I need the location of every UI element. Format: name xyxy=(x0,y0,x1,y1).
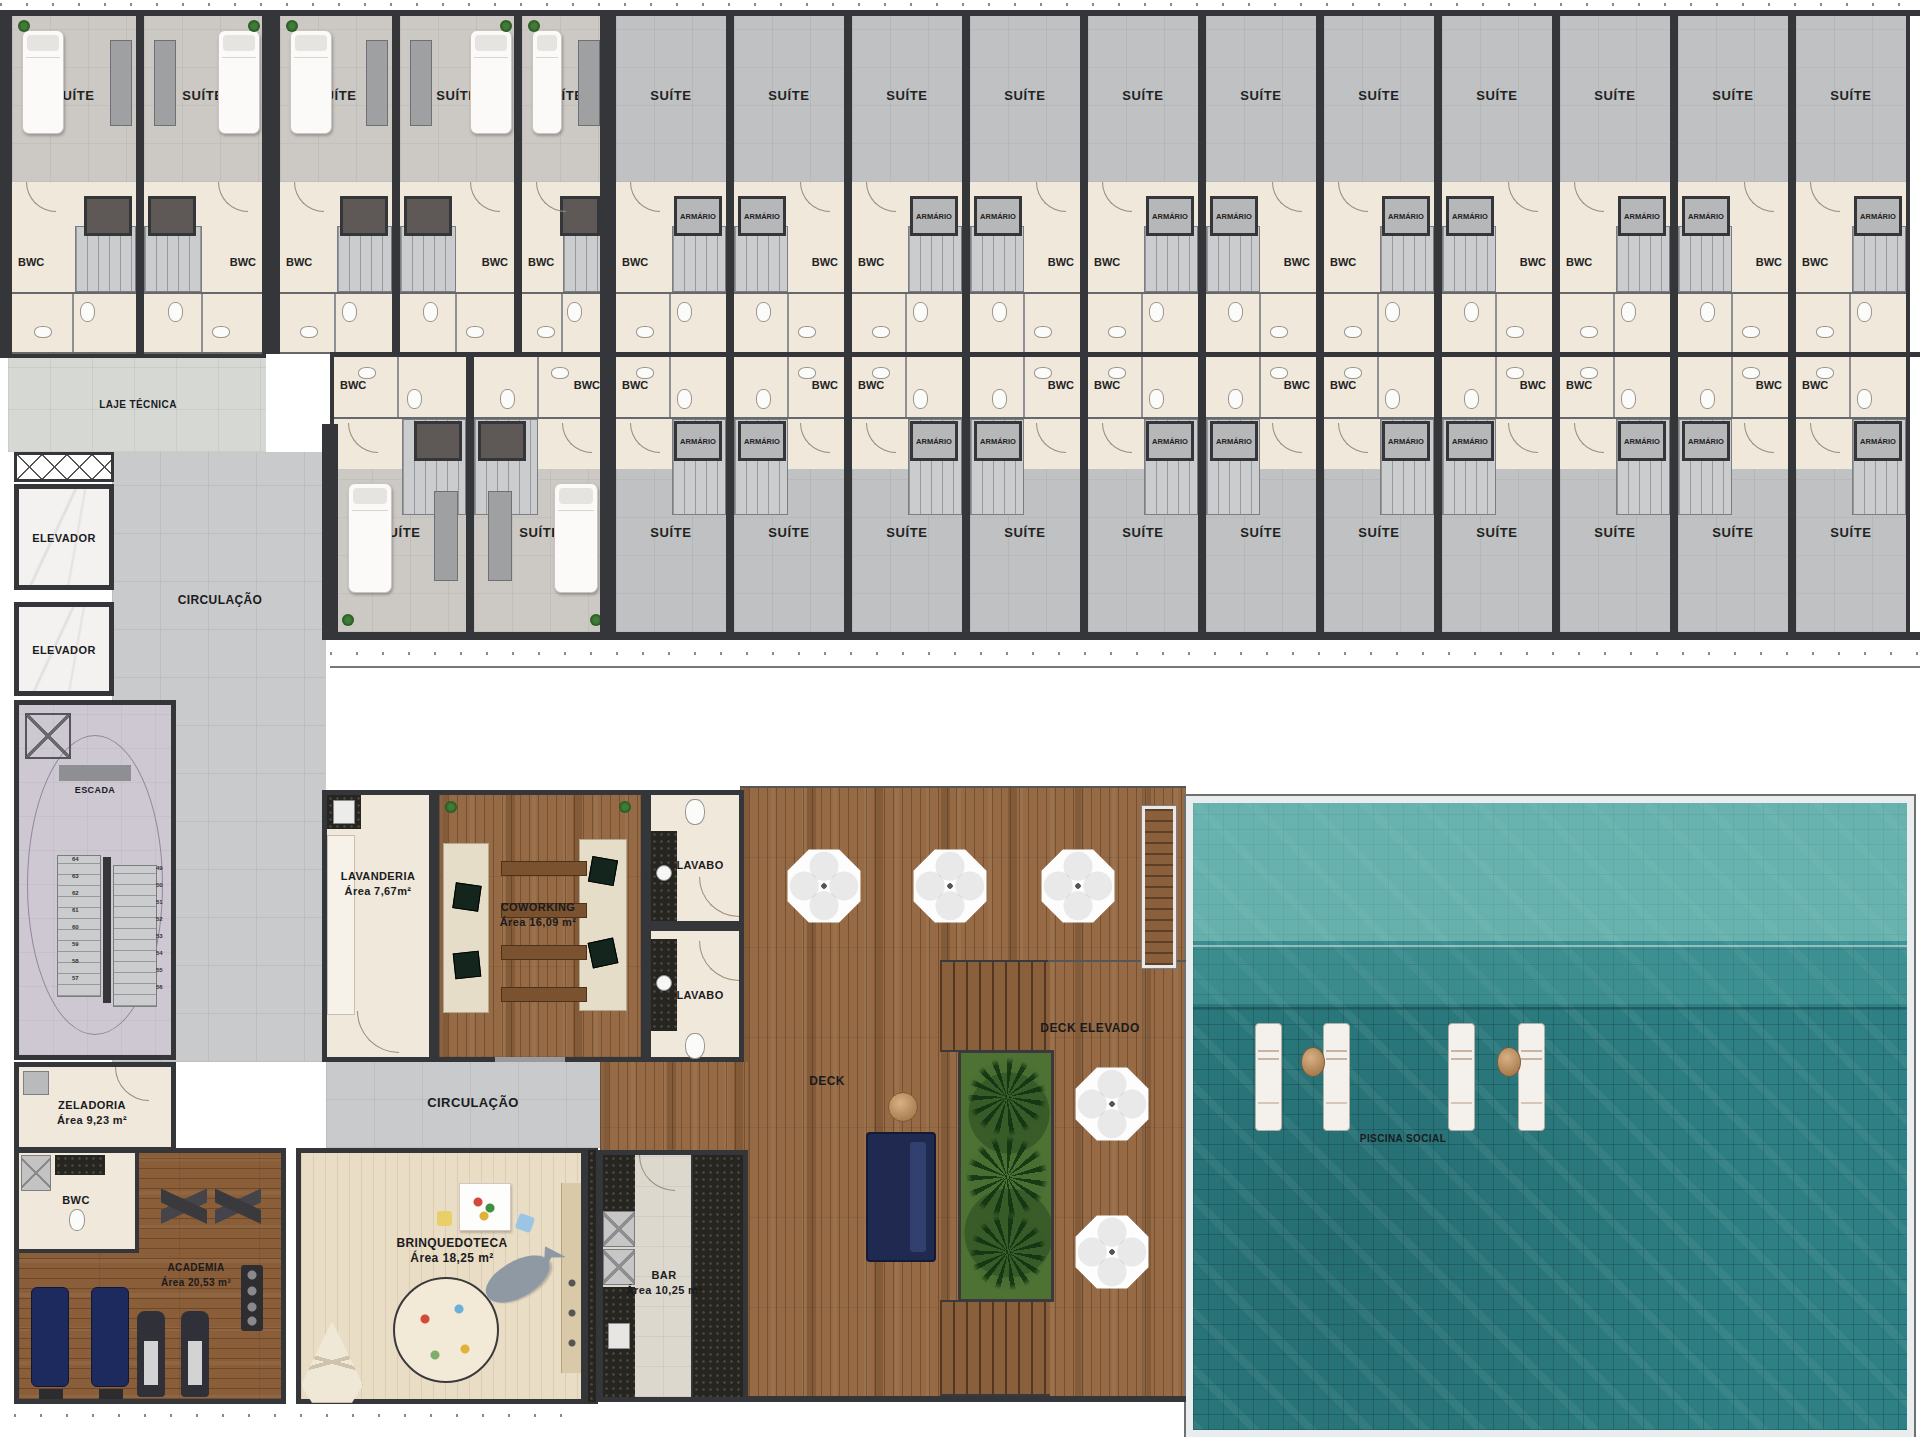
room-lavanderia xyxy=(322,790,434,1062)
label-deck: DECK xyxy=(809,1074,845,1089)
pair-wall xyxy=(0,10,8,358)
toilet xyxy=(567,302,582,322)
gym-treadmill xyxy=(181,1311,209,1397)
toilet xyxy=(80,302,95,322)
floor-plan: SUÍTEBWCSUÍTEBWCSUÍTEBWCSUÍTEBWCSUÍTEBWC… xyxy=(0,0,1920,1437)
suite-unit-row2: BWCARMÁRIOSUÍTE xyxy=(1556,357,1674,632)
stair-number: 64 xyxy=(72,856,79,862)
armario-closet xyxy=(414,421,462,461)
suite-bathroom-fixtures xyxy=(144,292,262,354)
sink xyxy=(1506,326,1524,338)
bath-divider xyxy=(72,294,74,352)
gym-crosstrainer xyxy=(215,1159,261,1231)
plant xyxy=(528,20,540,32)
bath-divider xyxy=(905,294,907,352)
label-elevador-1: ELEVADOR xyxy=(32,531,96,546)
suite-unit-row1: SUÍTEBWC xyxy=(518,16,608,354)
suite-label: SUÍTE xyxy=(1560,525,1670,540)
armario-closet: ARMÁRIO xyxy=(1382,421,1430,461)
pool-lounger xyxy=(1448,1023,1475,1131)
stair-number: 59 xyxy=(72,941,79,947)
sink xyxy=(34,326,52,338)
suite-unit-row1: SUÍTEBWC xyxy=(276,16,396,354)
gym-crosstrainer xyxy=(161,1159,207,1231)
sink xyxy=(872,367,890,379)
room-brinquedoteca xyxy=(296,1148,586,1404)
suite-label: SUÍTE xyxy=(1088,88,1198,103)
bwc-label: BWC xyxy=(286,256,312,268)
top-railing xyxy=(0,0,1920,10)
palm-tree xyxy=(964,1208,1052,1296)
wardrobe xyxy=(110,40,132,126)
suite-label: SUÍTE xyxy=(1088,525,1198,540)
suite-bathroom-fixtures xyxy=(1206,292,1316,354)
toilet xyxy=(685,799,705,825)
plant xyxy=(342,614,354,626)
suite-label: SUÍTE xyxy=(852,88,962,103)
bar-stove xyxy=(603,1211,635,1247)
wardrobe xyxy=(578,40,600,126)
shower-box xyxy=(21,1155,51,1191)
bwc-label: BWC xyxy=(622,379,648,391)
bath-divider xyxy=(787,294,789,352)
bath-divider xyxy=(1377,357,1379,417)
pair-wall xyxy=(262,10,276,354)
sink xyxy=(1506,367,1524,379)
sink xyxy=(1742,326,1760,338)
escada-steps-right xyxy=(113,865,157,1007)
sink xyxy=(212,326,230,338)
pool-side-table xyxy=(1497,1047,1521,1077)
palm-tree xyxy=(962,1052,1052,1142)
toilet xyxy=(168,302,183,322)
bwc-label: BWC xyxy=(1094,256,1120,268)
bed xyxy=(348,483,392,593)
lavanderia-door-arc xyxy=(357,1011,399,1053)
bath-divider xyxy=(1613,294,1615,352)
sink xyxy=(466,326,484,338)
armario-closet: ARMÁRIO xyxy=(674,421,722,461)
armario-closet: ARMÁRIO xyxy=(910,421,958,461)
basin xyxy=(656,865,672,881)
toilet xyxy=(913,389,928,409)
suite-label: SUÍTE xyxy=(616,88,726,103)
armario-closet xyxy=(404,196,452,236)
armario-closet xyxy=(478,421,526,461)
bwc-label: BWC xyxy=(482,256,508,268)
pool-lounger xyxy=(1518,1023,1545,1131)
suite-bathroom-fixtures xyxy=(1678,292,1788,354)
suite-label: SUÍTE xyxy=(1678,525,1788,540)
plant xyxy=(500,20,512,32)
armario-closet: ARMÁRIO xyxy=(974,196,1022,236)
bwc-label: BWC xyxy=(340,379,366,391)
bwc-label: BWC xyxy=(1520,256,1546,268)
suite-unit-row1: SUÍTEARMÁRIOBWC xyxy=(1320,16,1438,354)
suite-bathroom-fixtures xyxy=(1796,292,1906,354)
suite-bathroom-fixtures xyxy=(852,292,962,354)
suite-label: SUÍTE xyxy=(1206,525,1316,540)
room-escada xyxy=(14,700,176,1060)
bwc-label: BWC xyxy=(1566,256,1592,268)
bath-divider xyxy=(1495,357,1497,417)
suite-bathroom-fixtures xyxy=(12,292,136,354)
bath-divider xyxy=(1849,294,1851,352)
suite-label: SUÍTE xyxy=(852,525,962,540)
bwc-label: BWC xyxy=(1330,256,1356,268)
suite-unit-row2: BWCARMÁRIOSUÍTE xyxy=(1674,357,1792,632)
armario-closet: ARMÁRIO xyxy=(1382,196,1430,236)
armario-closet: ARMÁRIO xyxy=(1682,421,1730,461)
gym-treadmill xyxy=(137,1311,165,1397)
play-rug xyxy=(393,1277,499,1383)
label-zeladoria: ZELADORIAÁrea 9,23 m² xyxy=(57,1098,127,1128)
bed xyxy=(218,30,260,134)
sink xyxy=(872,326,890,338)
pool xyxy=(1186,796,1914,1437)
deck-step-band xyxy=(940,960,1050,1052)
bed xyxy=(532,30,562,134)
armario-closet: ARMÁRIO xyxy=(1446,421,1494,461)
stair-number: 62 xyxy=(72,890,79,896)
armario-closet xyxy=(340,196,388,236)
toilet xyxy=(677,389,692,409)
suite-bathroom-fixtures xyxy=(616,292,726,354)
suite-label: SUÍTE xyxy=(734,88,844,103)
suite-label: SUÍTE xyxy=(1678,88,1788,103)
bwc-label: BWC xyxy=(1802,256,1828,268)
bar-door-arc xyxy=(639,1155,675,1191)
toilet xyxy=(1700,302,1715,322)
toilet xyxy=(1464,389,1479,409)
sink xyxy=(551,367,569,379)
armario-closet: ARMÁRIO xyxy=(674,196,722,236)
bwc-label: BWC xyxy=(1756,256,1782,268)
pool-lounger xyxy=(1323,1023,1350,1131)
suite-unit-row2: BWCARMÁRIOSUÍTE xyxy=(1202,357,1320,632)
bwc-label: BWC xyxy=(230,256,256,268)
bwc-label: BWC xyxy=(528,256,554,268)
toilet xyxy=(913,302,928,322)
sink xyxy=(1108,326,1126,338)
toilet xyxy=(500,389,515,409)
suite-bathroom-fixtures xyxy=(522,292,604,354)
armario-closet: ARMÁRIO xyxy=(738,196,786,236)
pool-step-line xyxy=(1193,1007,1907,1009)
suite-unit-row2: BWCSUÍTE xyxy=(330,357,470,632)
stair-number: 61 xyxy=(72,907,79,913)
bwc-label: BWC xyxy=(1094,379,1120,391)
stair-number: 57 xyxy=(72,975,79,981)
toilet xyxy=(1464,302,1479,322)
toilet xyxy=(342,302,357,322)
toilet xyxy=(756,302,771,322)
suite-unit-row1: SUÍTEARMÁRIOBWC xyxy=(966,16,1084,354)
toilet xyxy=(992,302,1007,322)
bed xyxy=(554,483,598,593)
label-bwc-academia: BWC xyxy=(62,1193,89,1208)
bath-divider xyxy=(1259,294,1261,352)
stair-number: 63 xyxy=(72,873,79,879)
suite-unit-row2: BWCARMÁRIOSUÍTE xyxy=(1320,357,1438,632)
suite-unit-row2: BWCARMÁRIOSUÍTE xyxy=(1084,357,1202,632)
bath-divider xyxy=(1259,357,1261,417)
armario-closet: ARMÁRIO xyxy=(1854,196,1902,236)
bwc-counter xyxy=(55,1155,105,1175)
laje-top-wall xyxy=(8,354,266,358)
armario-closet: ARMÁRIO xyxy=(1446,196,1494,236)
suite-unit-row2: BWCARMÁRIOSUÍTE xyxy=(966,357,1084,632)
sink xyxy=(636,326,654,338)
bed xyxy=(470,30,512,134)
sink xyxy=(1034,367,1052,379)
suite-unit-row1: SUÍTEARMÁRIOBWC xyxy=(848,16,966,354)
teepee-tent xyxy=(301,1321,363,1403)
suite-unit-row2: BWCARMÁRIOSUÍTE xyxy=(1438,357,1556,632)
label-deck-elevado: DECK ELEVADO xyxy=(1040,1021,1139,1036)
desk xyxy=(443,843,489,1013)
sink xyxy=(537,326,555,338)
plant xyxy=(619,801,631,813)
toilet xyxy=(1149,302,1164,322)
sink xyxy=(798,326,816,338)
lavanderia-cabinet xyxy=(327,835,355,1015)
sink xyxy=(1270,326,1288,338)
label-circulacao-1: CIRCULAÇÃO xyxy=(178,593,263,608)
stair-number: 60 xyxy=(72,924,79,930)
label-escada: ESCADA xyxy=(75,783,115,798)
label-laje-tecnica: LAJE TÉCNICA xyxy=(99,397,177,412)
bwc-label: BWC xyxy=(1566,379,1592,391)
bath-divider xyxy=(1023,357,1025,417)
armario-closet: ARMÁRIO xyxy=(1210,196,1258,236)
row2-outer-line xyxy=(330,666,1920,668)
deck-bottom-wall xyxy=(748,1396,1186,1402)
suite-bathroom-fixtures xyxy=(734,292,844,354)
wardrobe xyxy=(488,491,512,581)
label-circulacao-2: CIRCULAÇÃO xyxy=(427,1095,518,1110)
pool-step-line xyxy=(1193,945,1907,947)
sink xyxy=(1580,367,1598,379)
stair-number: 56 xyxy=(156,984,163,990)
suite-label: SUÍTE xyxy=(970,525,1080,540)
suite-unit-row2: BWCARMÁRIOSUÍTE xyxy=(848,357,966,632)
kids-chair xyxy=(437,1211,452,1226)
kids-chair xyxy=(515,1213,536,1234)
suite-unit-row1: SUÍTEBWC xyxy=(396,16,518,354)
armario-closet xyxy=(560,196,600,236)
bath-divider xyxy=(1731,294,1733,352)
bwc-label: BWC xyxy=(622,256,648,268)
suite-unit-row1: SUÍTEBWC xyxy=(140,16,266,354)
suite-label: SUÍTE xyxy=(1442,88,1552,103)
bwc-label: BWC xyxy=(1048,256,1074,268)
suite-unit-row1: SUÍTEARMÁRIOBWC xyxy=(1438,16,1556,354)
suite-bathroom-fixtures xyxy=(1560,292,1670,354)
bed xyxy=(290,30,332,134)
bath-divider xyxy=(1141,294,1143,352)
wardrobe xyxy=(154,40,176,126)
bath-divider xyxy=(1141,357,1143,417)
suite-bathroom-fixtures xyxy=(970,292,1080,354)
bwc-label: BWC xyxy=(574,379,600,391)
label-lavabo-2: LAVABO xyxy=(676,988,723,1003)
bar-appliance xyxy=(608,1323,630,1349)
stair-number: 53 xyxy=(156,933,163,939)
bath-divider xyxy=(397,357,399,417)
bed xyxy=(22,30,64,134)
escada-landing xyxy=(59,765,131,781)
pool-edge-bench xyxy=(1142,806,1176,968)
bath-divider xyxy=(561,294,563,352)
top-wall xyxy=(0,10,1920,16)
stair-number: 54 xyxy=(156,950,163,956)
stair-number: 51 xyxy=(156,899,163,905)
bottom-railing xyxy=(330,642,1920,666)
plant xyxy=(18,20,30,32)
suite-label: SUÍTE xyxy=(1324,525,1434,540)
kids-table xyxy=(459,1183,511,1231)
sink xyxy=(358,367,376,379)
bwc-label: BWC xyxy=(858,256,884,268)
elevator-shaft-hatch xyxy=(14,452,114,482)
toilet xyxy=(1857,302,1872,322)
sink xyxy=(1580,326,1598,338)
toilet xyxy=(1385,302,1400,322)
toilet xyxy=(677,302,692,322)
label-lavabo-1: LAVABO xyxy=(676,858,723,873)
toilet xyxy=(407,389,422,409)
toilet xyxy=(1149,389,1164,409)
lounger-base xyxy=(99,1389,123,1399)
sliding-door xyxy=(495,1057,565,1062)
stair-number: 50 xyxy=(156,882,163,888)
deck-sofa xyxy=(866,1132,936,1262)
row2-bottom-wall xyxy=(330,632,1920,640)
toilet xyxy=(1228,389,1243,409)
long-table xyxy=(501,987,587,1002)
toilet xyxy=(756,389,771,409)
bwc-label: BWC xyxy=(1284,379,1310,391)
stair-number: 49 xyxy=(156,865,163,871)
suite-unit-row2: BWCARMÁRIOSUÍTE xyxy=(730,357,848,632)
suite-bathroom-fixtures xyxy=(280,292,392,354)
bottom-left-railing xyxy=(14,1408,586,1428)
stair-number: 55 xyxy=(156,967,163,973)
mid-band-wall xyxy=(330,352,1920,357)
bwc-label: BWC xyxy=(1756,379,1782,391)
label-brinquedoteca: BRINQUEDOTECAÁrea 18,25 m² xyxy=(396,1236,507,1266)
suite-unit-row1: SUÍTEARMÁRIOBWC xyxy=(1084,16,1202,354)
label-elevador-2: ELEVADOR xyxy=(32,643,96,658)
bath-divider xyxy=(1377,294,1379,352)
wardrobe xyxy=(410,40,432,126)
toilet xyxy=(1385,389,1400,409)
suite-unit-row1: SUÍTEARMÁRIOBWC xyxy=(1792,16,1910,354)
suite-bathroom-fixtures xyxy=(400,292,514,354)
sink xyxy=(1270,367,1288,379)
bwc-label: BWC xyxy=(858,379,884,391)
suite-label: SUÍTE xyxy=(1560,88,1670,103)
armario-closet: ARMÁRIO xyxy=(738,421,786,461)
wardrobe xyxy=(366,40,388,126)
toilet xyxy=(1700,389,1715,409)
toilet xyxy=(69,1209,85,1231)
label-bar: BARÁrea 10,25 m² xyxy=(626,1268,703,1298)
armario-closet: ARMÁRIO xyxy=(1146,196,1194,236)
escada-core-wall xyxy=(103,857,111,1003)
suite-unit-row1: SUÍTEARMÁRIOBWC xyxy=(1674,16,1792,354)
sink xyxy=(798,367,816,379)
bath-divider xyxy=(455,294,457,352)
suite-unit-row2: BWCARMÁRIOSUÍTE xyxy=(1792,357,1910,632)
suite-unit-row1: SUÍTEARMÁRIOBWC xyxy=(1556,16,1674,354)
bath-divider xyxy=(669,294,671,352)
toilet xyxy=(423,302,438,322)
suite-label: SUÍTE xyxy=(1796,525,1906,540)
bwc-label: BWC xyxy=(1330,379,1356,391)
sink xyxy=(1344,367,1362,379)
long-table xyxy=(501,861,587,876)
sink xyxy=(1816,326,1834,338)
bwc-label: BWC xyxy=(812,256,838,268)
bath-divider xyxy=(787,357,789,417)
pool-side-table xyxy=(1301,1047,1325,1077)
suite-unit-row1: SUÍTEARMÁRIOBWC xyxy=(612,16,730,354)
sink xyxy=(1344,326,1362,338)
suite-bathroom-fixtures xyxy=(1442,292,1552,354)
pool-lounger xyxy=(1255,1023,1282,1131)
bath-divider xyxy=(1849,357,1851,417)
label-lavanderia: LAVANDERIAÁrea 7,67m² xyxy=(341,869,415,899)
toilet xyxy=(1857,389,1872,409)
bwc-label: BWC xyxy=(1284,256,1310,268)
suite-label: SUÍTE xyxy=(1796,88,1906,103)
armario-closet: ARMÁRIO xyxy=(974,421,1022,461)
toy-shelf xyxy=(561,1183,581,1373)
basin xyxy=(656,975,672,991)
lavabo-door-arc xyxy=(699,941,739,981)
washer xyxy=(333,800,355,824)
sink xyxy=(1816,367,1834,379)
suite-label: SUÍTE xyxy=(1324,88,1434,103)
suite-label: SUÍTE xyxy=(1206,88,1316,103)
bwc-label: BWC xyxy=(18,256,44,268)
plant xyxy=(445,801,457,813)
armario-closet: ARMÁRIO xyxy=(1146,421,1194,461)
bwc-label: BWC xyxy=(1802,379,1828,391)
label-piscina-social: PISCINA SOCIAL xyxy=(1360,1131,1446,1146)
sink xyxy=(1108,367,1126,379)
gym-weights xyxy=(241,1265,263,1331)
bath-divider xyxy=(1023,294,1025,352)
toilet xyxy=(992,389,1007,409)
toilet xyxy=(685,1033,705,1059)
suite-bathroom-fixtures xyxy=(1088,292,1198,354)
armario-closet: ARMÁRIO xyxy=(1618,421,1666,461)
bath-divider xyxy=(1731,357,1733,417)
bwc-label: BWC xyxy=(812,379,838,391)
massage-lounger xyxy=(91,1287,129,1387)
deck-side-table xyxy=(888,1092,918,1122)
bath-divider xyxy=(334,294,336,352)
suite-unit-row1: SUÍTEARMÁRIOBWC xyxy=(730,16,848,354)
label-academia: ACADEMIAÁrea 20,53 m² xyxy=(161,1260,231,1290)
suite-unit-row1: SUÍTEBWC xyxy=(8,16,140,354)
pair-wall xyxy=(600,10,612,640)
bwc-label: BWC xyxy=(1520,379,1546,391)
bath-divider xyxy=(905,357,907,417)
